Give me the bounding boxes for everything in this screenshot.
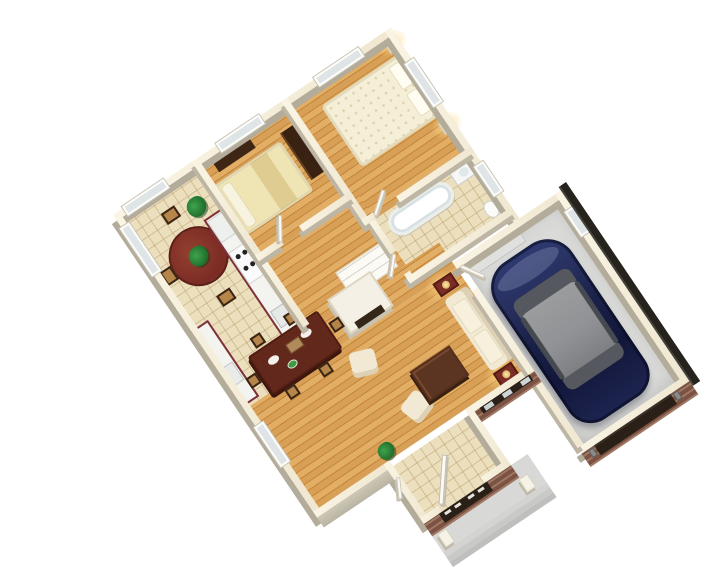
door-bedroom2 (278, 215, 282, 242)
render-canvas (0, 0, 720, 576)
